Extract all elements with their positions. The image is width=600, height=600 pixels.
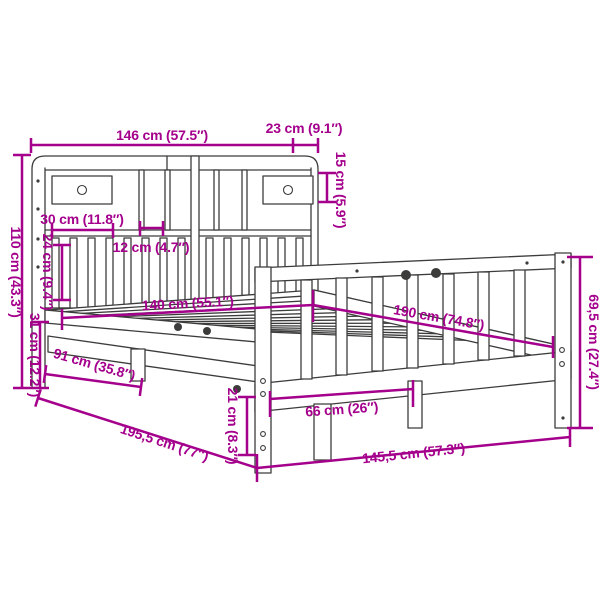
- dimension-label: 145,5 cm (57.3″): [361, 440, 465, 467]
- dimension-label: 23 cm (9.1″): [266, 120, 343, 136]
- footboard-spindle: [514, 270, 525, 356]
- footboard-spindle: [301, 280, 312, 379]
- footboard-spindle: [372, 277, 383, 371]
- dimension-label: 195,5 cm (77″): [118, 420, 210, 464]
- footboard-near-post: [255, 267, 271, 473]
- diagram-canvas: 146 cm (57.5″) 23 cm (9.1″) 15 cm (5.9″)…: [0, 0, 600, 600]
- dimension-side-depth: 23 cm (9.1″): [266, 120, 343, 153]
- shelf-divider: [242, 170, 247, 230]
- dimension-label: 69,5 cm (27.4″): [586, 294, 600, 390]
- dimension-drawer-height: 15 cm (5.9″): [318, 152, 349, 229]
- dimension-label: 24 cm (9.4″): [40, 234, 56, 311]
- shelf-divider: [165, 170, 170, 230]
- drawer-knob: [78, 186, 87, 195]
- drawer-knob: [284, 186, 293, 195]
- shelf-divider: [214, 170, 219, 230]
- footboard-spindle: [336, 278, 347, 375]
- dimension-frame-width: 145,5 cm (57.3″): [257, 427, 570, 468]
- dimension-label: 31 cm (12.2″): [27, 313, 43, 397]
- dimension-label: 15 cm (5.9″): [333, 152, 349, 229]
- drawer-right: [263, 176, 313, 204]
- product-dimension-image: 146 cm (57.5″) 23 cm (9.1″) 15 cm (5.9″)…: [0, 0, 600, 600]
- dimension-label: 30 cm (11.8″): [40, 211, 124, 227]
- footboard-far-post: [555, 253, 571, 428]
- dimension-line: [293, 138, 318, 153]
- dimension-clearance-height: 21 cm (8.3″): [225, 388, 256, 465]
- dimension-label: 110 cm (43.3″): [8, 226, 24, 317]
- dimension-label: 146 cm (57.5″): [116, 127, 208, 143]
- dimension-label: 21 cm (8.3″): [225, 388, 241, 465]
- dimension-base-height: 31 cm (12.2″): [27, 313, 49, 397]
- drawer-left: [52, 176, 112, 204]
- dimension-footboard-height: 69,5 cm (27.4″): [567, 257, 600, 428]
- dimension-total-length: 195,5 cm (77″): [35, 389, 257, 482]
- dimension-label: 12 cm (4.7″): [113, 239, 190, 255]
- dimension-total-width: 146 cm (57.5″): [31, 127, 293, 153]
- headboard-center-post: [191, 156, 199, 308]
